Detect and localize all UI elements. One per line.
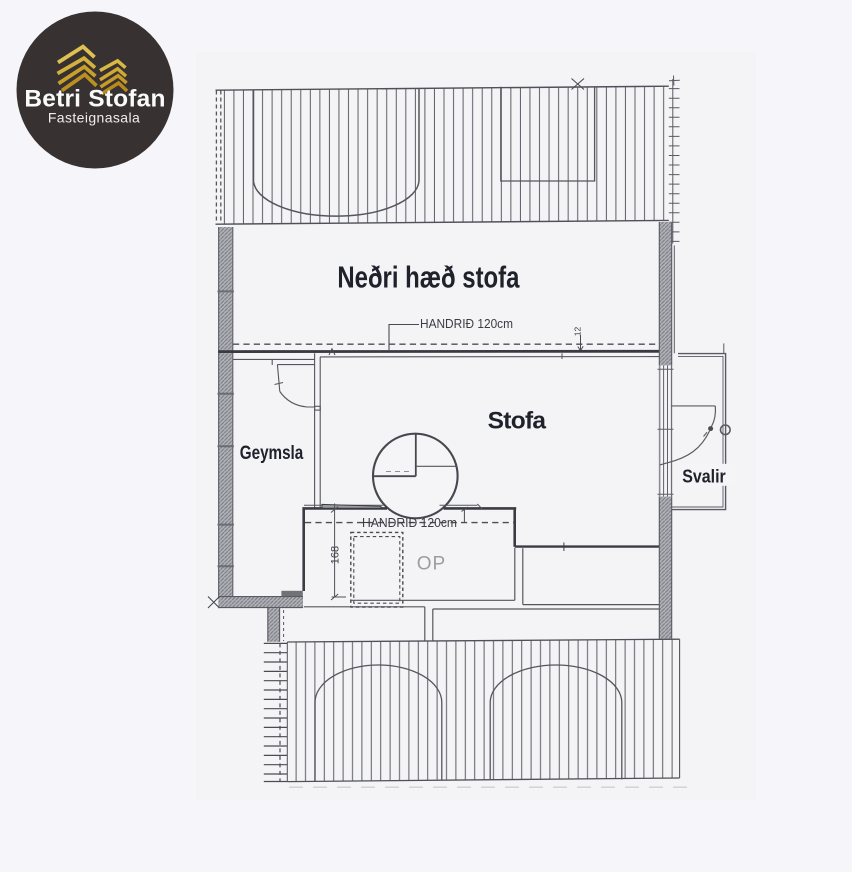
svg-text:HANDRIÐ 120cm: HANDRIÐ 120cm (362, 515, 457, 530)
svg-text:12: 12 (573, 327, 583, 337)
svg-text:Geymsla: Geymsla (240, 443, 304, 464)
svg-text:Svalir: Svalir (682, 465, 726, 486)
svg-text:OP: OP (417, 554, 446, 575)
svg-text:168: 168 (330, 546, 342, 564)
svg-text:Stofa: Stofa (488, 408, 547, 435)
svg-text:Fasteignasala: Fasteignasala (48, 110, 140, 126)
svg-text:Neðri hæð stofa: Neðri hæð stofa (337, 260, 520, 295)
svg-text:HANDRIÐ 120cm: HANDRIÐ 120cm (420, 316, 513, 331)
svg-text:Betri Stofan: Betri Stofan (24, 85, 165, 112)
